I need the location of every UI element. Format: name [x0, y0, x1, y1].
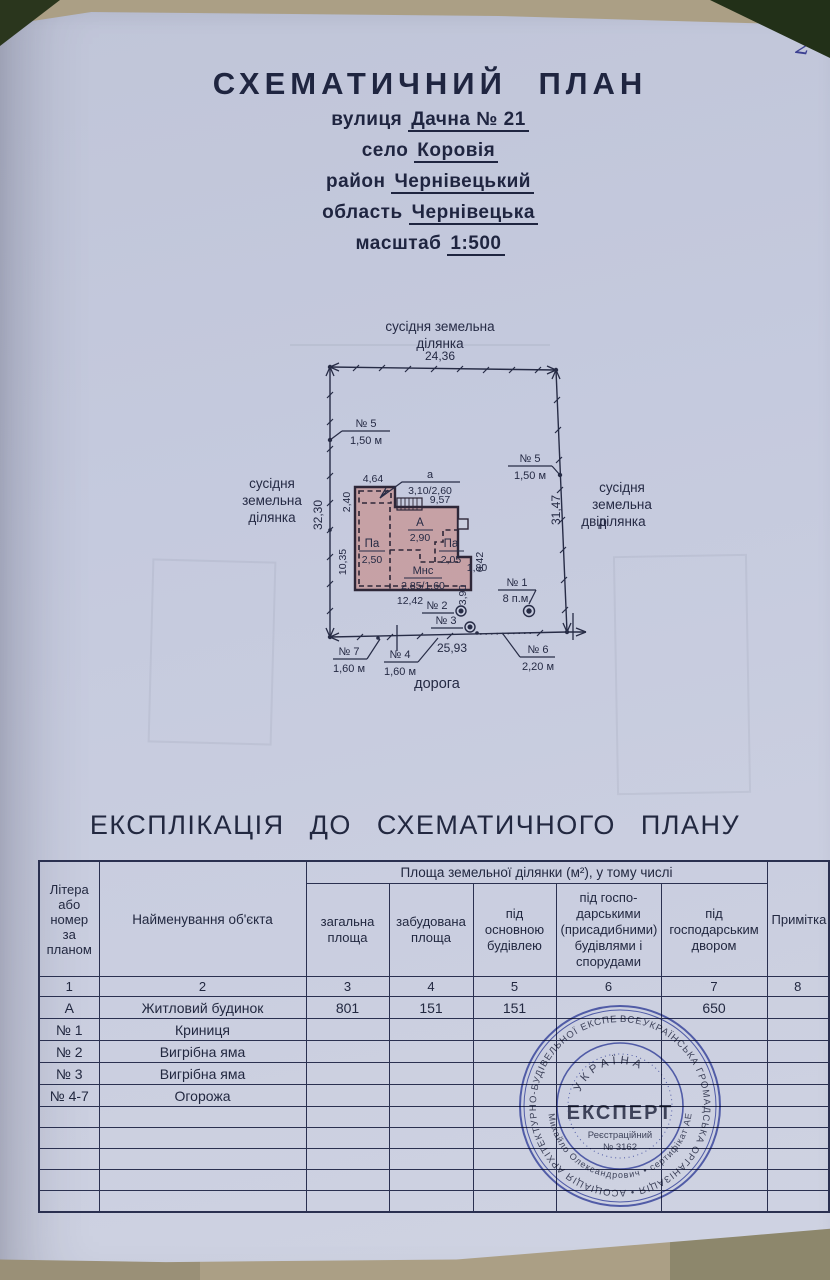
table-header-row: Літера або номер за планом Найменування …: [39, 861, 829, 884]
yard-label: двір: [581, 514, 607, 529]
svg-text:1,60 м: 1,60 м: [384, 666, 416, 678]
address-line-region: областьЧернівецька: [180, 200, 680, 226]
svg-text:№ 7: № 7: [339, 646, 360, 658]
svg-text:2,50: 2,50: [362, 554, 383, 566]
empty-cell: [39, 1128, 99, 1149]
empty-cell: [39, 1149, 99, 1170]
svg-text:32,30: 32,30: [311, 500, 325, 530]
column-number-row: 1 2 3 4 5 6 7 8: [39, 977, 829, 997]
empty-cell: [767, 1170, 829, 1191]
empty-cell: [306, 1170, 389, 1191]
empty-cell: [99, 1149, 306, 1170]
cell-letter: № 3: [39, 1063, 99, 1085]
cell-object-name: Огорожа: [99, 1085, 306, 1107]
svg-text:№ 2: № 2: [427, 600, 448, 612]
svg-text:25,93: 25,93: [437, 641, 467, 655]
empty-cell: [306, 1128, 389, 1149]
header-area-span: Площа земельної ділянки (м²), у тому чис…: [306, 861, 767, 884]
cell-object-name: Вигрібна яма: [99, 1063, 306, 1085]
cell-letter: № 2: [39, 1041, 99, 1063]
address-label: село: [362, 140, 409, 161]
stamp-reg-label: Реєстраційний: [588, 1130, 652, 1141]
cell-built-area: [389, 1063, 473, 1085]
svg-text:2,90: 2,90: [410, 532, 431, 544]
empty-cell: [306, 1149, 389, 1170]
cell-letter: № 4-7: [39, 1085, 99, 1107]
svg-text:сусідня земельна: сусідня земельна: [385, 319, 495, 334]
title-block: СХЕМАТИЧНИЙ ПЛАН вулицяДачна № 21 селоКо…: [180, 66, 680, 257]
cell-note: [767, 1063, 829, 1085]
cell-object-name: Криниця: [99, 1019, 306, 1041]
cell-note: [767, 1085, 829, 1107]
svg-text:земельна: земельна: [592, 497, 652, 512]
svg-text:2,20 м: 2,20 м: [522, 661, 554, 673]
empty-cell: [99, 1191, 306, 1213]
empty-cell: [389, 1149, 473, 1170]
svg-text:№ 5: № 5: [356, 418, 377, 430]
scale-value: 1:500: [447, 233, 504, 256]
empty-cell: [767, 1191, 829, 1213]
svg-text:А: А: [416, 517, 424, 529]
svg-text:№ 6: № 6: [528, 644, 549, 656]
cell-total-area: [306, 1041, 389, 1063]
colnum: 5: [473, 977, 556, 997]
empty-cell: [389, 1191, 473, 1213]
cell-built-area: [389, 1019, 473, 1041]
empty-cell: [767, 1149, 829, 1170]
header-col3: загальна площа: [306, 884, 389, 977]
cell-note: [767, 997, 829, 1019]
road-label: дорога: [414, 676, 461, 692]
colnum: 3: [306, 977, 389, 997]
svg-text:12,42: 12,42: [397, 595, 423, 607]
stamp-country-text: УКРАЇНА: [572, 1055, 647, 1094]
svg-text:6,42: 6,42: [474, 552, 486, 573]
cell-object-name: Житловий будинок: [99, 997, 306, 1019]
svg-text:№ 1: № 1: [507, 577, 528, 589]
svg-text:№ 3: № 3: [436, 615, 457, 627]
svg-text:10,35: 10,35: [337, 549, 349, 575]
header-col6: під госпо­дарськими (присадибними) будів…: [556, 884, 661, 977]
header-col2: Найменування об'єкта: [99, 861, 306, 977]
wall-feature: [458, 519, 468, 529]
stamp-reg-number: № 3162: [603, 1142, 637, 1153]
svg-text:3,10/2,60: 3,10/2,60: [408, 485, 452, 497]
svg-text:№ 5: № 5: [520, 453, 541, 465]
empty-cell: [99, 1107, 306, 1128]
colnum: 2: [99, 977, 306, 997]
page-title: СХЕМАТИЧНИЙ ПЛАН: [180, 66, 680, 102]
svg-text:24,36: 24,36: [425, 349, 455, 363]
header-col7: під господарським двором: [661, 884, 767, 977]
site-plan-drawing: сусідня земельна ділянка сусідня земельн…: [230, 310, 680, 710]
cell-letter: А: [39, 997, 99, 1019]
svg-text:4,64: 4,64: [363, 473, 384, 485]
header-col4: забудована площа: [389, 884, 473, 977]
cell-built-area: 151: [389, 997, 473, 1019]
address-label: вулиця: [331, 109, 402, 130]
empty-cell: [389, 1128, 473, 1149]
header-col8: Примітка: [767, 861, 829, 977]
svg-text:1,60 м: 1,60 м: [333, 663, 365, 675]
empty-cell: [99, 1170, 306, 1191]
cell-total-area: [306, 1063, 389, 1085]
svg-text:Па: Па: [444, 538, 459, 550]
empty-cell: [39, 1191, 99, 1213]
address-line-district: районЧернівецький: [180, 169, 680, 195]
cell-total-area: [306, 1085, 389, 1107]
address-label: район: [326, 171, 385, 192]
svg-text:№ 4: № 4: [390, 649, 411, 661]
svg-text:3,90: 3,90: [457, 585, 469, 606]
empty-cell: [306, 1107, 389, 1128]
cell-total-area: [306, 1019, 389, 1041]
round-stamp: ВСЕУКРАЇНСЬКА ГРОМАДСЬКА ОРГАНІЗАЦІЯ • А…: [514, 1000, 726, 1212]
cell-object-name: Вигрібна яма: [99, 1041, 306, 1063]
address-value: Коровія: [414, 140, 498, 163]
cell-note: [767, 1019, 829, 1041]
address-value: Чернівецька: [409, 202, 538, 225]
address-line-street: вулицяДачна № 21: [180, 107, 680, 133]
svg-text:31,47: 31,47: [549, 495, 563, 525]
header-col5: під основною будівлею: [473, 884, 556, 977]
scale-label: масштаб: [356, 233, 442, 254]
svg-text:2,40: 2,40: [341, 492, 353, 513]
svg-text:Мнс: Мнс: [413, 565, 434, 577]
scale-line: масштаб1:500: [180, 231, 680, 257]
address-value: Дачна № 21: [408, 109, 529, 132]
empty-cell: [389, 1107, 473, 1128]
address-value: Чернівецький: [391, 171, 534, 194]
svg-text:земельна: земельна: [242, 493, 302, 508]
empty-cell: [389, 1170, 473, 1191]
svg-text:2,85/1,60: 2,85/1,60: [401, 580, 445, 592]
svg-text:ділянка: ділянка: [248, 510, 296, 525]
svg-text:2,05: 2,05: [441, 554, 462, 566]
svg-text:Па: Па: [365, 538, 380, 550]
svg-text:а: а: [427, 469, 434, 481]
empty-cell: [306, 1191, 389, 1213]
cell-letter: № 1: [39, 1019, 99, 1041]
stamp-name-text: ЕКСПЕРТ: [567, 1102, 674, 1124]
address-line-village: селоКоровія: [180, 138, 680, 164]
well-and-pit-symbols: [456, 606, 535, 633]
cell-built-area: [389, 1085, 473, 1107]
empty-cell: [39, 1107, 99, 1128]
svg-text:8 п.м.: 8 п.м.: [503, 593, 532, 605]
header-col1: Літера або номер за планом: [39, 861, 99, 977]
cell-built-area: [389, 1041, 473, 1063]
site-plan-svg: сусідня земельна ділянка сусідня земельн…: [230, 310, 680, 710]
colnum: 6: [556, 977, 661, 997]
svg-text:сусідня: сусідня: [599, 480, 645, 495]
address-label: область: [322, 202, 403, 223]
empty-cell: [767, 1128, 829, 1149]
colnum: 7: [661, 977, 767, 997]
svg-text:1,50 м: 1,50 м: [350, 435, 382, 447]
empty-cell: [767, 1107, 829, 1128]
cell-note: [767, 1041, 829, 1063]
empty-cell: [39, 1170, 99, 1191]
colnum: 1: [39, 977, 99, 997]
svg-text:сусідня: сусідня: [249, 476, 295, 491]
colnum: 8: [767, 977, 829, 997]
cell-total-area: 801: [306, 997, 389, 1019]
svg-text:1,50 м: 1,50 м: [514, 470, 546, 482]
empty-cell: [99, 1128, 306, 1149]
explication-title: ЕКСПЛІКАЦІЯ ДО СХЕМАТИЧНОГО ПЛАНУ: [40, 810, 790, 841]
colnum: 4: [389, 977, 473, 997]
